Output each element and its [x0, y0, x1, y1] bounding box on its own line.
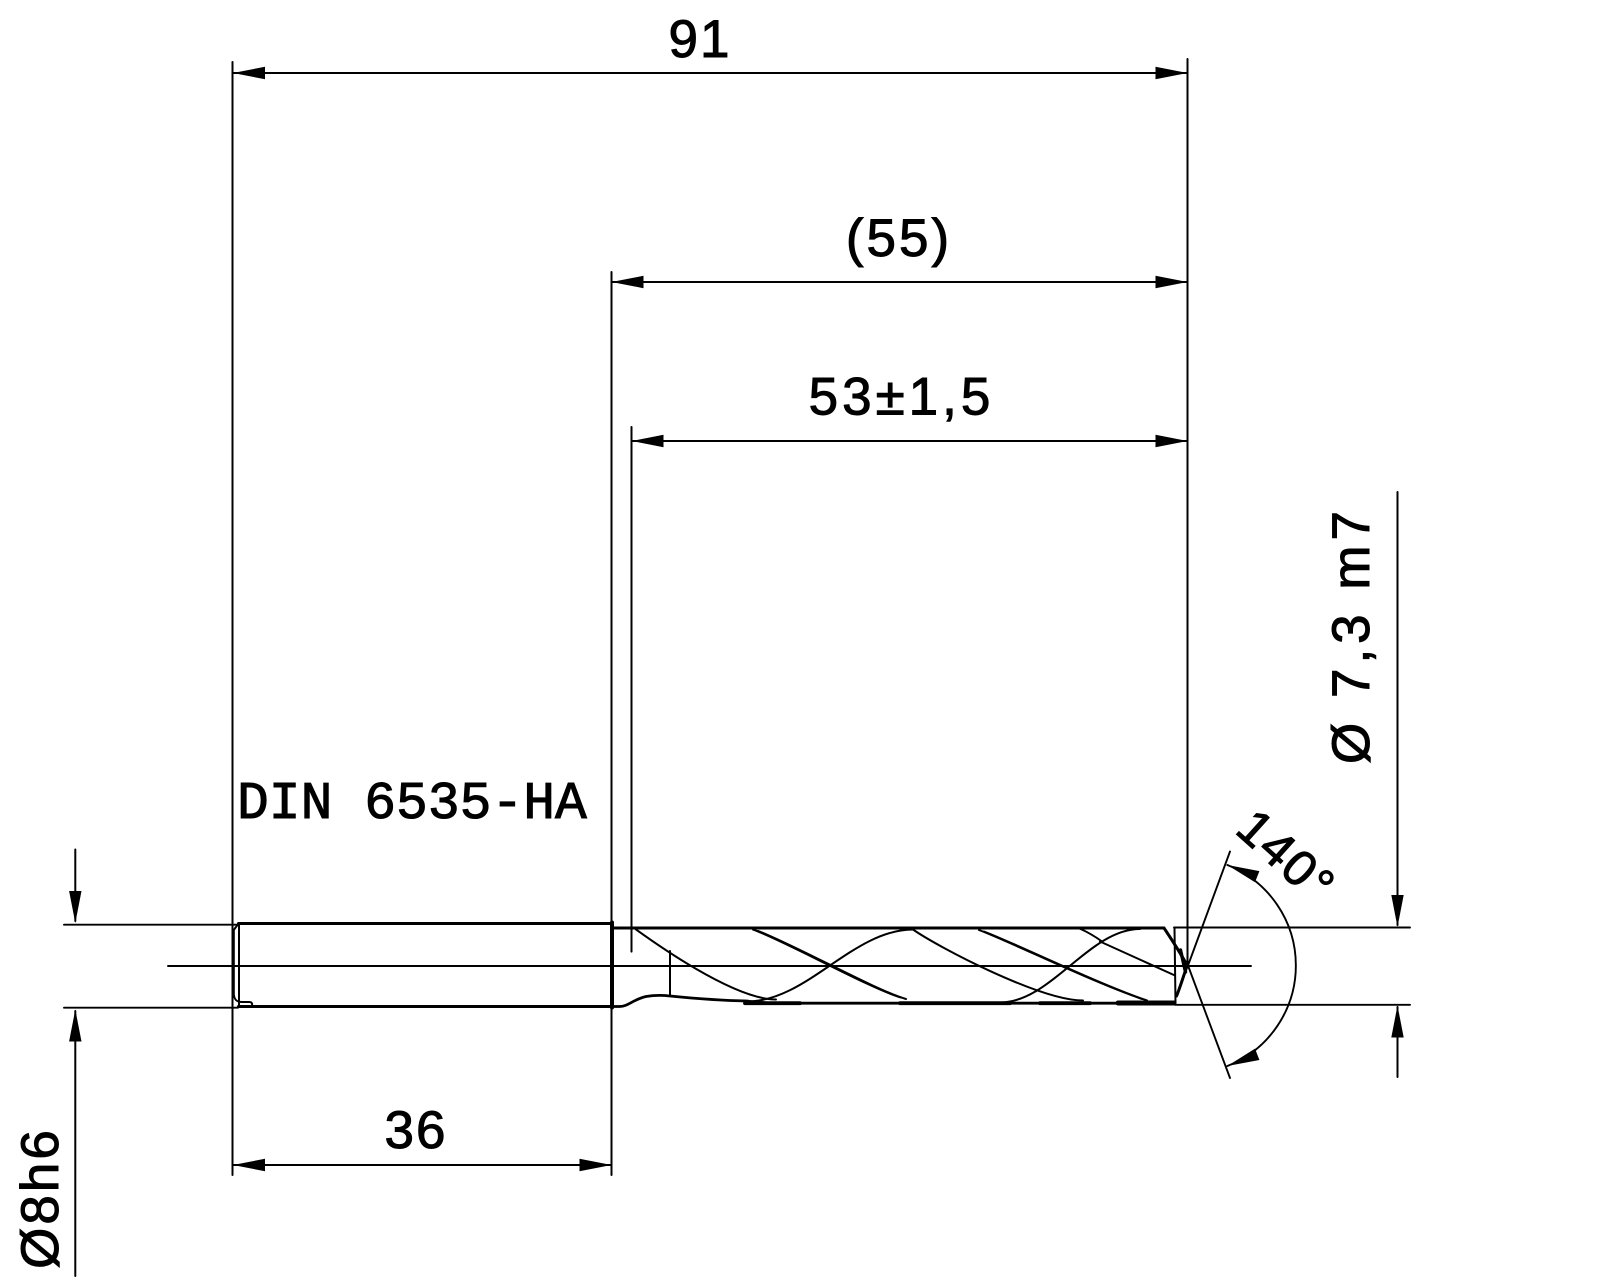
svg-text:(55): (55) [846, 209, 952, 268]
svg-text:36: 36 [385, 1101, 448, 1160]
svg-text:53±1,5: 53±1,5 [809, 368, 995, 427]
svg-text:DIN 6535-HA: DIN 6535-HA [237, 774, 587, 834]
svg-text:91: 91 [669, 10, 732, 69]
svg-text:Ø 7,3 m7: Ø 7,3 m7 [1322, 506, 1381, 764]
svg-text:140°: 140° [1226, 798, 1346, 914]
svg-text:Ø8h6: Ø8h6 [11, 1127, 70, 1269]
